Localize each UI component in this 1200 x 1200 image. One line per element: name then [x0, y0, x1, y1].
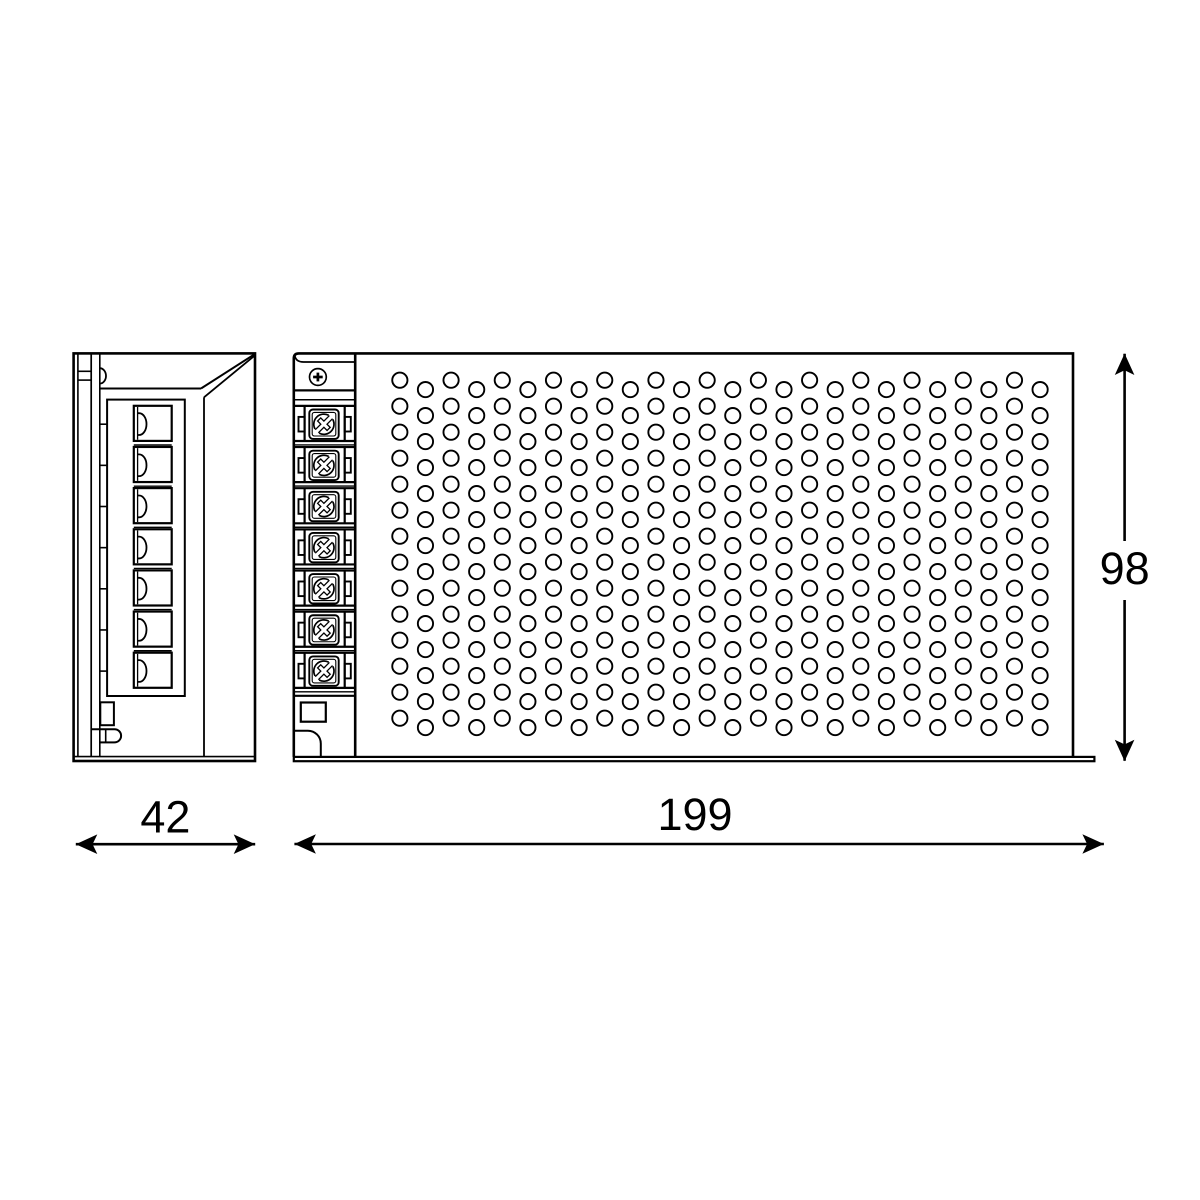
svg-text:42: 42: [140, 791, 190, 842]
svg-text:199: 199: [657, 789, 732, 840]
svg-text:98: 98: [1100, 543, 1150, 594]
